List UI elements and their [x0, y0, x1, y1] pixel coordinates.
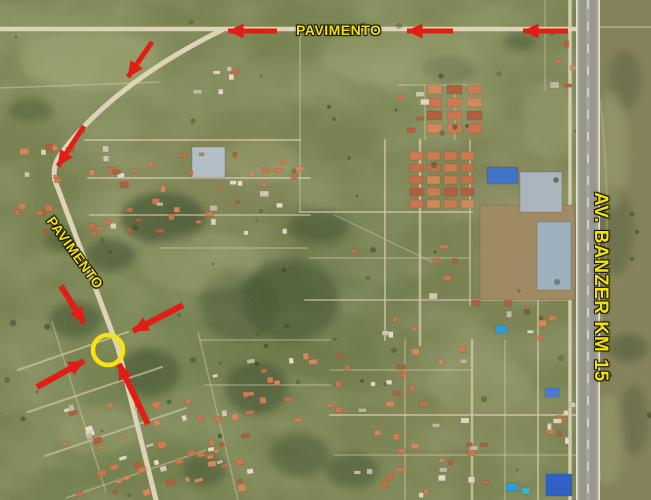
house	[289, 358, 294, 364]
house	[103, 146, 109, 152]
house	[565, 437, 569, 443]
house	[274, 168, 282, 172]
rowhouse	[447, 111, 462, 120]
rowhouse	[444, 176, 457, 184]
tree	[558, 355, 565, 362]
house	[468, 450, 476, 455]
tree	[190, 357, 196, 363]
house	[439, 245, 447, 249]
house	[235, 459, 244, 466]
house	[396, 468, 404, 472]
tree	[332, 117, 336, 121]
house	[179, 153, 188, 157]
house	[470, 446, 478, 450]
house	[206, 212, 213, 216]
tree	[4, 377, 10, 383]
house	[452, 258, 457, 262]
tree	[167, 400, 172, 405]
tree	[347, 156, 351, 160]
house	[393, 434, 399, 440]
rowhouse	[444, 164, 457, 172]
tree	[383, 382, 387, 386]
map-canvas	[0, 0, 651, 500]
house	[156, 229, 165, 233]
tree	[630, 257, 634, 261]
house	[149, 161, 153, 167]
house	[439, 458, 444, 462]
house	[460, 359, 466, 363]
tree	[496, 71, 502, 77]
tree	[36, 391, 39, 394]
house	[505, 300, 512, 306]
house	[230, 181, 237, 185]
house	[244, 231, 249, 235]
house	[261, 369, 267, 374]
house	[218, 89, 223, 94]
house	[262, 168, 269, 173]
tree	[439, 130, 445, 136]
blue-warehouse	[487, 167, 518, 184]
rowhouse	[461, 152, 474, 160]
tree	[284, 323, 290, 329]
tree	[292, 169, 297, 174]
house	[103, 156, 109, 162]
blue-building	[546, 474, 572, 496]
tree	[438, 73, 443, 78]
house	[371, 382, 376, 386]
house	[506, 311, 511, 317]
house	[393, 318, 398, 322]
house	[553, 419, 561, 424]
house	[282, 229, 287, 234]
house	[439, 468, 447, 473]
house	[420, 401, 428, 406]
long-warehouse	[537, 222, 571, 290]
tree	[127, 493, 131, 497]
tree	[44, 324, 50, 330]
rowhouse	[461, 164, 474, 172]
house	[557, 430, 562, 436]
tree	[517, 289, 520, 292]
rowhouse	[427, 98, 442, 107]
house	[247, 468, 254, 474]
house	[210, 205, 217, 210]
house	[169, 214, 175, 220]
tree	[188, 19, 193, 24]
rowhouse	[467, 98, 482, 107]
house	[550, 82, 559, 88]
rowhouse	[410, 164, 423, 172]
house	[156, 203, 163, 206]
house	[393, 391, 401, 395]
tree	[433, 250, 436, 253]
house	[433, 258, 438, 263]
rowhouse	[467, 124, 482, 133]
house	[237, 484, 246, 492]
rowhouse	[410, 200, 423, 208]
tree	[21, 417, 26, 422]
house	[555, 60, 560, 64]
house	[90, 170, 95, 176]
house	[291, 173, 297, 179]
house	[424, 489, 428, 494]
tree	[554, 279, 560, 285]
tree	[524, 309, 531, 316]
tree	[296, 380, 301, 385]
tree	[635, 230, 639, 234]
tree	[259, 209, 264, 214]
tree	[327, 105, 331, 109]
house	[276, 203, 282, 208]
house	[438, 475, 445, 481]
tree	[539, 316, 544, 321]
rowhouse	[467, 111, 482, 120]
house	[132, 169, 136, 173]
house	[52, 145, 57, 150]
rowhouse	[444, 152, 457, 160]
tree	[190, 118, 195, 123]
house	[229, 74, 234, 80]
tree	[256, 220, 259, 223]
house	[417, 117, 424, 120]
rowhouse	[427, 200, 440, 208]
house	[345, 366, 349, 372]
house	[367, 469, 373, 474]
house	[407, 128, 415, 133]
house	[199, 153, 204, 156]
tree	[630, 212, 635, 217]
house	[135, 218, 141, 221]
house	[43, 229, 48, 234]
rowhouse	[427, 85, 442, 94]
pool	[506, 483, 518, 491]
tree	[360, 379, 364, 383]
house	[193, 90, 202, 94]
tree	[131, 224, 136, 229]
tree	[10, 320, 17, 327]
house	[482, 480, 489, 483]
house	[45, 205, 53, 211]
house	[161, 186, 166, 192]
house	[127, 228, 132, 233]
rowhouse	[427, 176, 440, 184]
satellite-map: PAVIMENTO PAVIMENTO AV. BANZER KM 15	[0, 0, 651, 500]
house	[564, 41, 568, 47]
house	[260, 191, 269, 197]
house	[527, 330, 533, 333]
house	[337, 353, 343, 357]
label-av-banzer-km15: AV. BANZER KM 15	[589, 192, 611, 382]
house	[472, 300, 480, 306]
house	[46, 144, 53, 150]
house	[547, 423, 551, 429]
house	[375, 430, 381, 435]
tree	[264, 344, 269, 349]
house	[461, 418, 469, 423]
house	[354, 471, 360, 474]
house	[410, 385, 414, 391]
house	[208, 460, 217, 467]
house	[280, 159, 286, 164]
house	[421, 99, 429, 105]
rowhouse	[447, 85, 462, 94]
house	[295, 166, 304, 171]
tree	[465, 124, 469, 128]
house	[217, 187, 221, 190]
house	[398, 95, 404, 100]
rowhouse	[410, 152, 423, 160]
house	[416, 92, 424, 97]
house	[549, 316, 557, 321]
tree	[177, 313, 181, 317]
rowhouse	[444, 200, 457, 208]
house	[386, 401, 394, 406]
tree	[212, 263, 215, 266]
house	[89, 223, 95, 228]
house	[25, 172, 30, 177]
house	[127, 208, 133, 212]
small-blue-building	[545, 388, 559, 397]
house	[480, 443, 488, 447]
tree	[391, 347, 397, 353]
house	[113, 170, 121, 174]
house	[54, 175, 59, 179]
house	[398, 449, 406, 453]
rowhouse	[410, 176, 423, 184]
house	[468, 477, 474, 483]
tree	[365, 275, 371, 281]
tree	[452, 124, 458, 130]
rowhouse	[461, 188, 474, 196]
tree	[101, 430, 104, 433]
house	[237, 479, 243, 484]
house	[336, 381, 341, 387]
house	[214, 416, 222, 423]
house	[569, 402, 576, 407]
house	[189, 171, 193, 175]
tree	[259, 74, 262, 77]
house	[261, 182, 266, 186]
house	[402, 371, 407, 377]
tree	[395, 109, 398, 112]
house	[382, 482, 389, 487]
house	[20, 148, 29, 154]
tree	[218, 434, 223, 439]
house	[466, 443, 472, 447]
house	[328, 403, 335, 407]
house	[213, 71, 220, 74]
rowhouse	[427, 111, 442, 120]
rowhouse	[447, 98, 462, 107]
rowhouse	[410, 188, 423, 196]
house	[443, 275, 451, 280]
house	[238, 181, 243, 186]
house	[459, 346, 465, 352]
rowhouse	[461, 200, 474, 208]
house	[358, 409, 366, 413]
house	[411, 349, 419, 355]
tree	[516, 469, 519, 472]
pool	[495, 325, 507, 333]
house	[110, 223, 116, 228]
pool	[522, 488, 530, 494]
tree	[99, 237, 105, 243]
house	[233, 152, 237, 157]
tree	[431, 162, 437, 168]
house	[19, 203, 26, 209]
tree	[218, 361, 222, 365]
house	[247, 359, 255, 364]
tree	[108, 250, 112, 254]
tree	[281, 267, 286, 272]
tree	[333, 337, 337, 341]
house	[267, 377, 274, 383]
house	[105, 218, 111, 224]
house	[563, 410, 568, 415]
house	[449, 460, 453, 465]
tree	[356, 195, 359, 198]
rowhouse	[427, 152, 440, 160]
house	[174, 207, 180, 212]
house	[539, 320, 547, 326]
rowhouse	[467, 85, 482, 94]
house	[208, 447, 215, 452]
house	[387, 474, 393, 480]
tree	[553, 177, 559, 183]
house	[96, 227, 104, 231]
house	[235, 201, 240, 204]
house	[412, 327, 417, 331]
house	[411, 443, 419, 448]
house	[37, 211, 43, 216]
house	[274, 380, 280, 386]
house	[389, 332, 394, 338]
house	[41, 150, 46, 155]
tree	[15, 36, 18, 39]
rowhouse	[427, 188, 440, 196]
house	[120, 182, 128, 188]
house	[14, 210, 19, 215]
tree	[255, 362, 260, 367]
tree	[481, 396, 487, 402]
house	[219, 442, 225, 447]
rowhouse	[444, 188, 457, 196]
house	[335, 407, 342, 412]
house	[197, 452, 205, 458]
house	[351, 249, 358, 254]
label-pavimento-top: PAVIMENTO	[296, 22, 381, 38]
house	[432, 424, 439, 428]
rowhouse	[461, 176, 474, 184]
tree	[370, 247, 376, 253]
tree	[256, 333, 260, 337]
tree	[396, 23, 402, 29]
house	[221, 410, 227, 417]
house	[214, 449, 219, 453]
house	[232, 69, 239, 75]
house	[90, 232, 96, 236]
house	[419, 493, 424, 498]
house	[429, 293, 437, 299]
warehouse-roof	[192, 147, 225, 178]
house	[438, 360, 443, 365]
house	[227, 67, 231, 72]
house	[382, 331, 389, 336]
house	[564, 84, 571, 87]
house	[250, 171, 254, 176]
house	[211, 219, 216, 225]
house	[303, 353, 309, 360]
house	[538, 335, 543, 341]
house	[309, 359, 318, 365]
house	[196, 220, 201, 223]
house	[397, 365, 406, 370]
house	[259, 397, 266, 404]
